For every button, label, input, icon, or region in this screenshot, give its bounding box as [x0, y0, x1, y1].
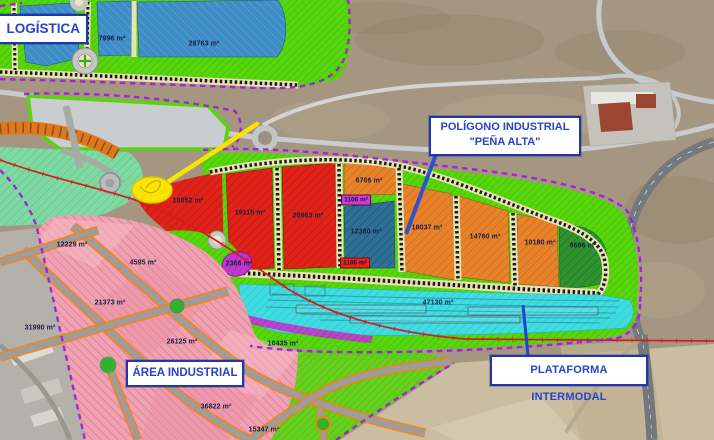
- callout-logistica: LOGÍSTICA: [0, 14, 88, 44]
- parcel-area-label: 12380 m²: [351, 229, 382, 236]
- parcel-area-label: 28763 m²: [189, 41, 220, 48]
- parcel-area-label: 2366 m²: [226, 261, 253, 268]
- parcel-area-label: 9696 m²: [570, 243, 597, 250]
- parcel-area-label: 14760 m²: [470, 234, 501, 241]
- parcel-area-label: 15347 m²: [249, 427, 280, 434]
- parcel-area-label: 36822 m²: [201, 404, 232, 411]
- parcel-area-label: 18037 m²: [412, 225, 443, 232]
- parcel-area-label: 12229 m²: [57, 242, 88, 249]
- roundabout: [170, 299, 184, 313]
- site-plan-map: 14045 m² 7996 m² 28763 m² 10052 m² 19115…: [0, 0, 714, 440]
- parcel-area-label: 47130 m²: [423, 300, 454, 307]
- callout-poligono-line1: POLÍGONO INDUSTRIAL: [441, 121, 570, 133]
- parcel-area-label: 10435 m²: [268, 341, 299, 348]
- logistics-parcel-28763: [137, 0, 286, 57]
- roundabout: [100, 357, 116, 373]
- parcel-area-chip: 1106 m²: [340, 258, 370, 269]
- parcel-10180: [517, 214, 559, 287]
- parcel-area-label: 7996 m²: [99, 36, 126, 43]
- parcel-area-label: 6706 m²: [356, 178, 383, 185]
- parcel-area-label: 26125 m²: [167, 339, 198, 346]
- building-complex: [583, 82, 676, 146]
- callout-poligono-line2: "PEÑA ALTA": [431, 135, 579, 150]
- parcel-area-label: 4595 m²: [130, 260, 157, 267]
- parcel-area-label: 31990 m²: [25, 325, 56, 332]
- parcel-area-label: 19115 m²: [235, 210, 265, 217]
- parcel-18037: [402, 184, 455, 280]
- parcel-area-label: 10180 m²: [525, 240, 556, 247]
- callout-poligono-industrial: POLÍGONO INDUSTRIAL "PEÑA ALTA": [429, 116, 581, 156]
- callout-plataforma-intermodal: PLATAFORMA INTERMODAL: [490, 355, 648, 386]
- parcel-area-label: 10052 m²: [173, 198, 204, 205]
- parcel-area-chip: 1106 m²: [341, 195, 371, 206]
- parcel-area-label: 20963 m²: [293, 213, 324, 220]
- logistics-parcel-7996: [97, 1, 132, 56]
- parcel-area-label: 21373 m²: [95, 300, 126, 307]
- highlight-marker: [132, 177, 172, 203]
- roundabout: [316, 417, 330, 431]
- callout-area-industrial: ÁREA INDUSTRIAL: [126, 360, 244, 387]
